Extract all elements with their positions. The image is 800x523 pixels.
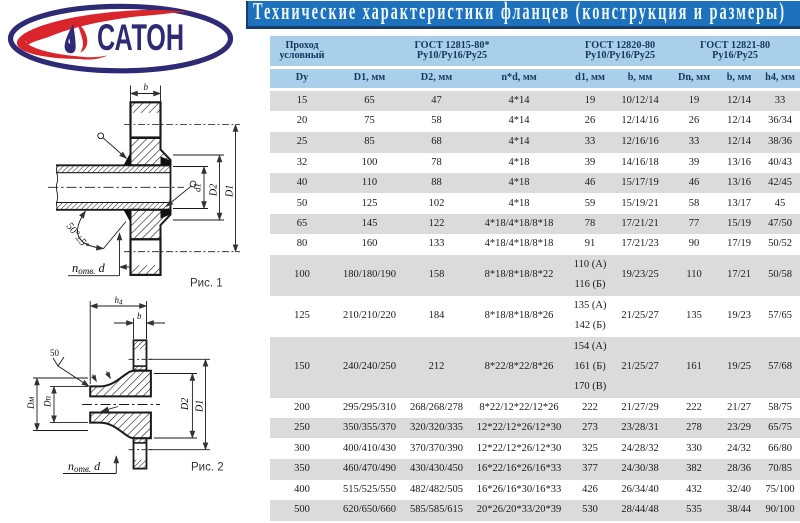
svg-text:D2: D2 bbox=[209, 184, 220, 197]
svg-text:D1: D1 bbox=[225, 185, 236, 198]
svg-text:d1: d1 bbox=[193, 183, 203, 192]
svg-text:50°±5°: 50°±5° bbox=[64, 221, 91, 251]
svg-text:D2: D2 bbox=[180, 398, 191, 411]
svg-text:D1: D1 bbox=[195, 400, 206, 413]
svg-text:Рис. 1: Рис. 1 bbox=[190, 278, 223, 290]
svg-text:b: b bbox=[144, 82, 149, 92]
svg-text:Dм: Dм bbox=[26, 397, 36, 410]
svg-text:nотв. d: nотв. d bbox=[72, 261, 106, 276]
svg-text:50: 50 bbox=[50, 348, 60, 358]
svg-text:САТОН: САТОН bbox=[97, 17, 184, 58]
svg-text:nотв. d: nотв. d bbox=[68, 459, 101, 474]
svg-text:Рис. 2: Рис. 2 bbox=[191, 462, 224, 474]
svg-text:Dп: Dп bbox=[43, 396, 53, 408]
svg-text:h4: h4 bbox=[115, 295, 124, 307]
svg-text:b: b bbox=[137, 311, 142, 321]
